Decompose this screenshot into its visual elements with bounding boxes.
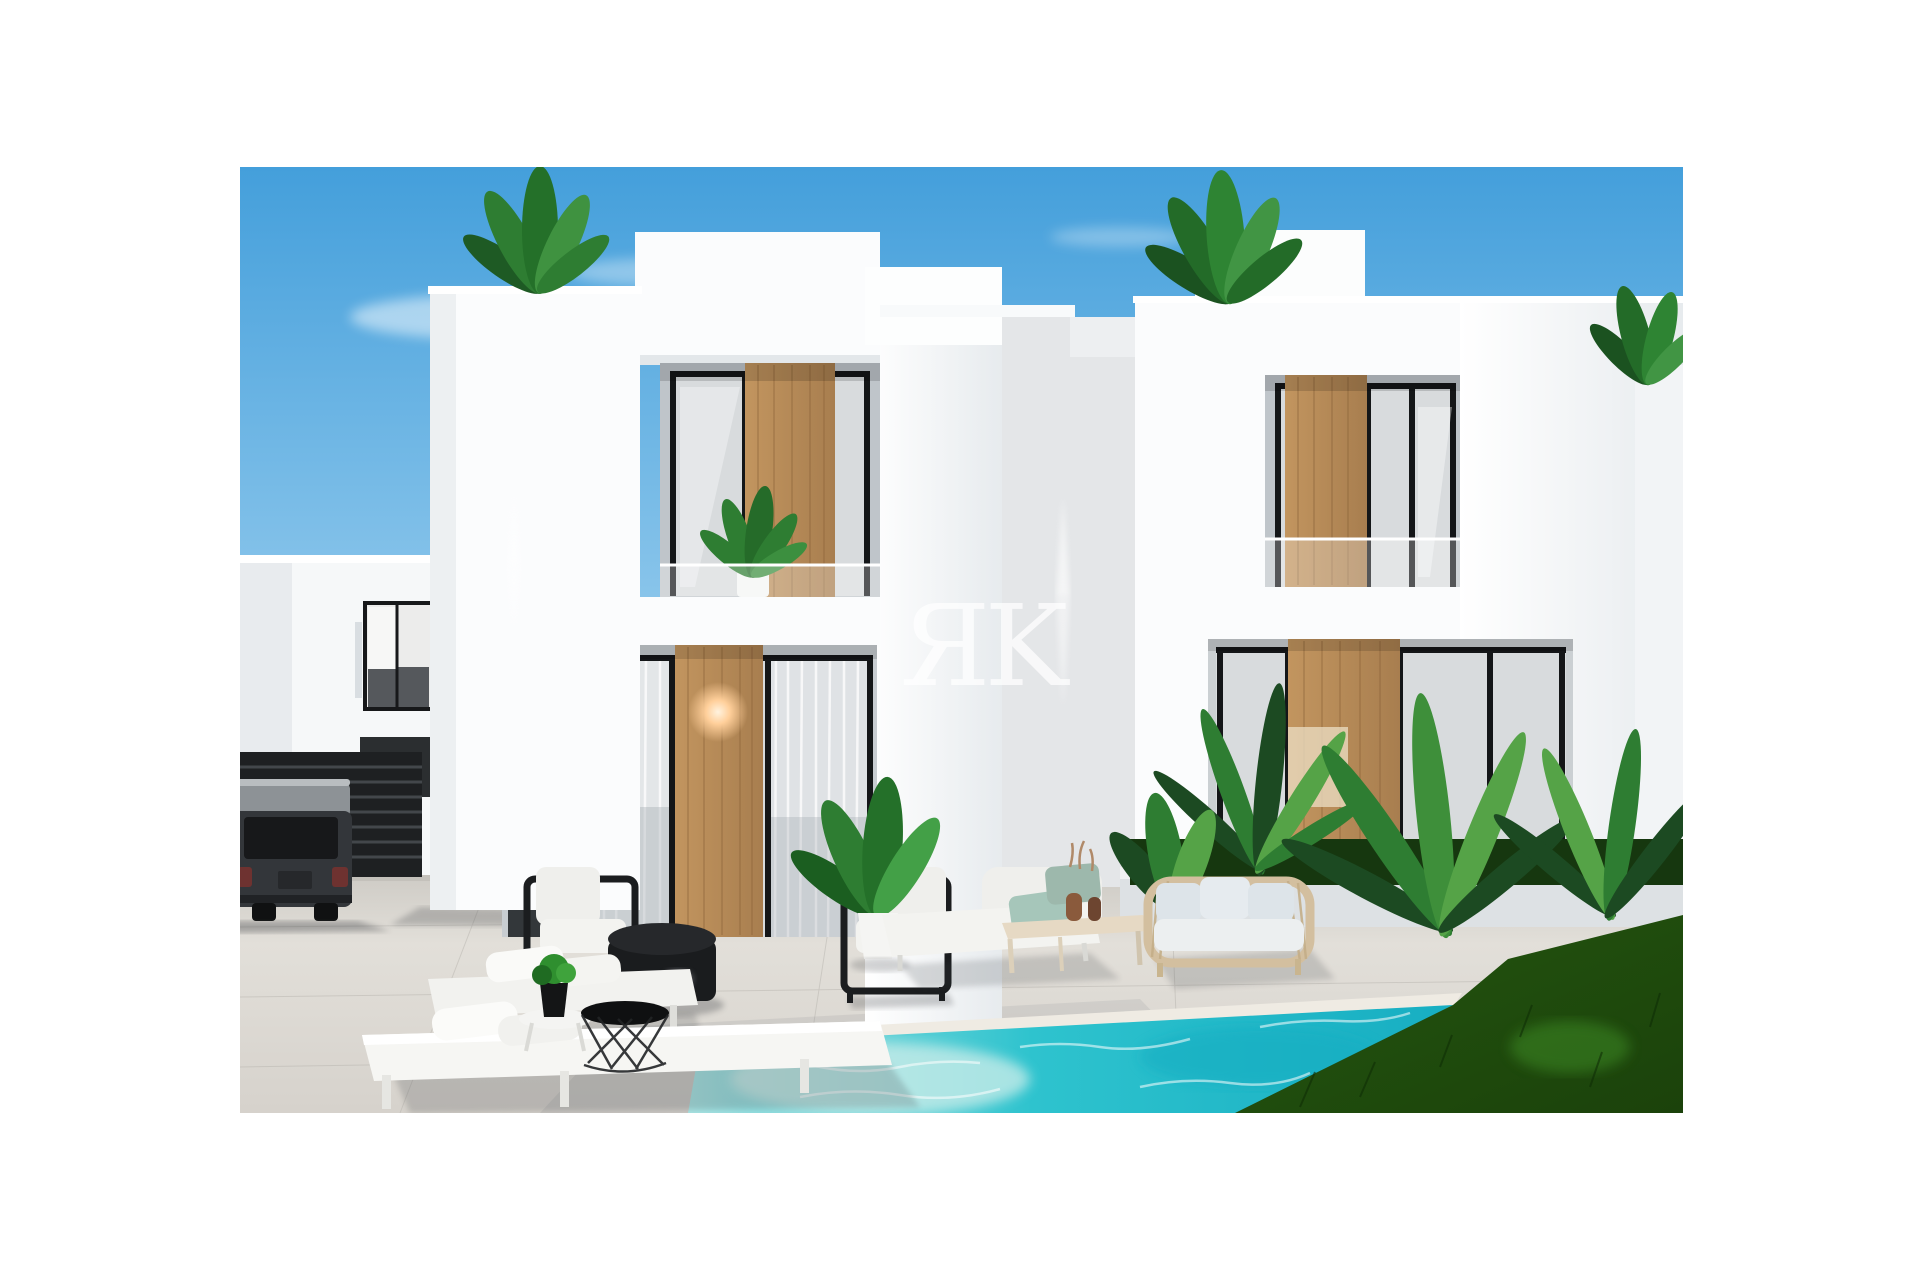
watermark-logo: ЯK xyxy=(900,582,1070,712)
villa-render-photo: ЯK xyxy=(240,167,1683,1113)
page: { "image": { "watermark": "ЯK" }, "color… xyxy=(0,0,1920,1280)
right-villa-balcony xyxy=(1265,375,1460,587)
render-scene: ЯK xyxy=(240,167,1683,1113)
upper-balcony xyxy=(660,363,880,600)
main-villa-left-tower xyxy=(428,286,642,910)
bedroom-window xyxy=(365,603,432,709)
roof-slab xyxy=(880,305,1075,317)
wall-lamp-glow xyxy=(688,682,748,742)
outdoor-sofa xyxy=(1148,877,1335,989)
